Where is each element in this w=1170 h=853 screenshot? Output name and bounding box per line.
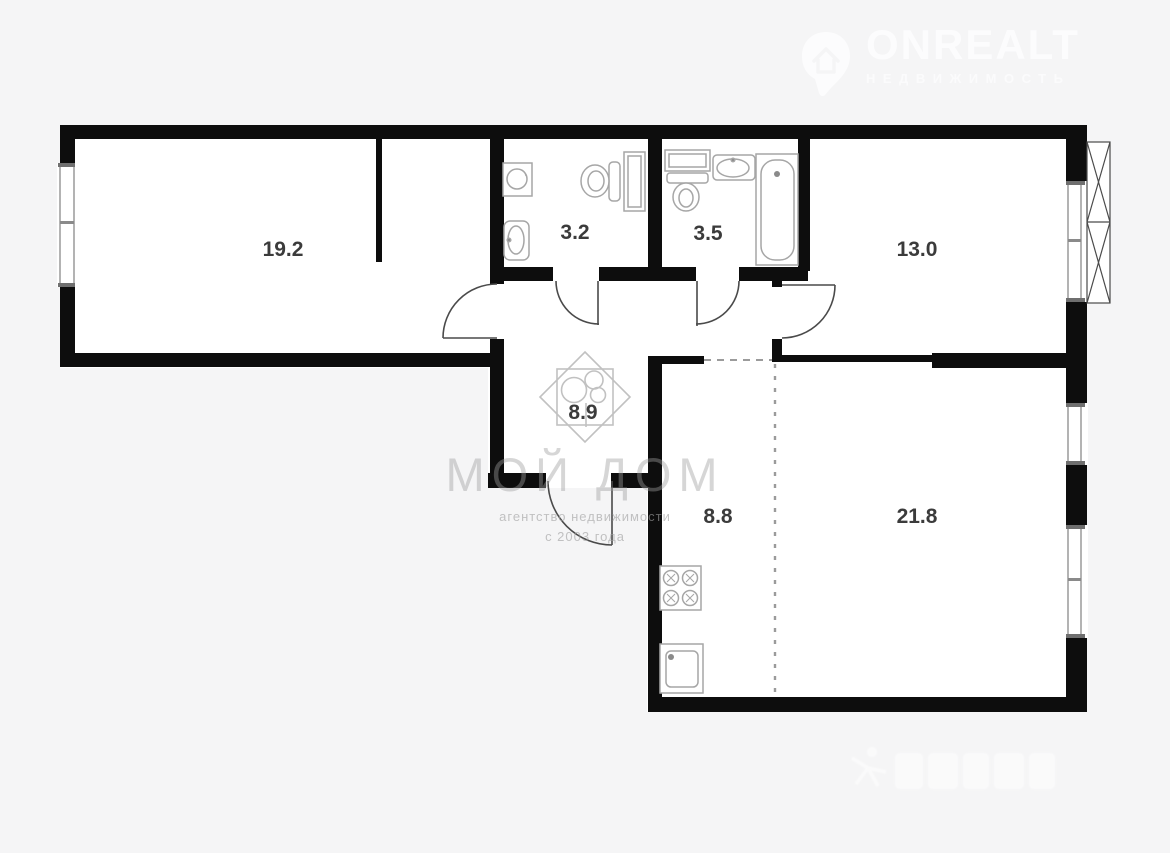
bottom-right-watermark	[852, 747, 1055, 789]
cabinet-icon	[624, 152, 645, 211]
onrealt-logo: ONREALT НЕДВИЖИМОСТЬ	[800, 22, 1150, 106]
room-area-label-19-2: 19.2	[263, 238, 304, 261]
room-area-label-8-9: 8.9	[568, 401, 597, 424]
room-area-label-21-8: 21.8	[897, 505, 938, 528]
map-pin-house-icon	[800, 30, 852, 98]
brand-tagline: НЕДВИЖИМОСТЬ	[866, 71, 1080, 86]
brand-title: ONREALT	[866, 22, 1080, 68]
sink-icon	[504, 221, 529, 260]
washing-machine-icon	[503, 163, 532, 196]
floor-plan: 19.2 3.2 3.5 13.0 8.9 8.8 21.8	[0, 0, 1170, 853]
kitchen-sink-icon	[660, 644, 703, 693]
stove-icon	[660, 566, 701, 610]
shelf-icon	[665, 150, 710, 171]
room-area-label-13-0: 13.0	[897, 238, 938, 261]
sink-icon	[713, 155, 755, 180]
room-area-label-3-2: 3.2	[560, 221, 589, 244]
window-room-13	[1064, 181, 1088, 302]
bathtub-icon	[756, 154, 798, 265]
window-left	[57, 163, 77, 287]
room-area-label-8-8: 8.8	[703, 505, 733, 528]
floor-plan-page: 19.2 3.2 3.5 13.0 8.9 8.8 21.8	[0, 0, 1170, 853]
room-area-label-3-5: 3.5	[693, 222, 723, 245]
window-living-lower	[1064, 525, 1088, 638]
window-living-upper	[1064, 403, 1088, 465]
door-entrance	[548, 481, 612, 545]
balcony-box	[1087, 142, 1110, 303]
